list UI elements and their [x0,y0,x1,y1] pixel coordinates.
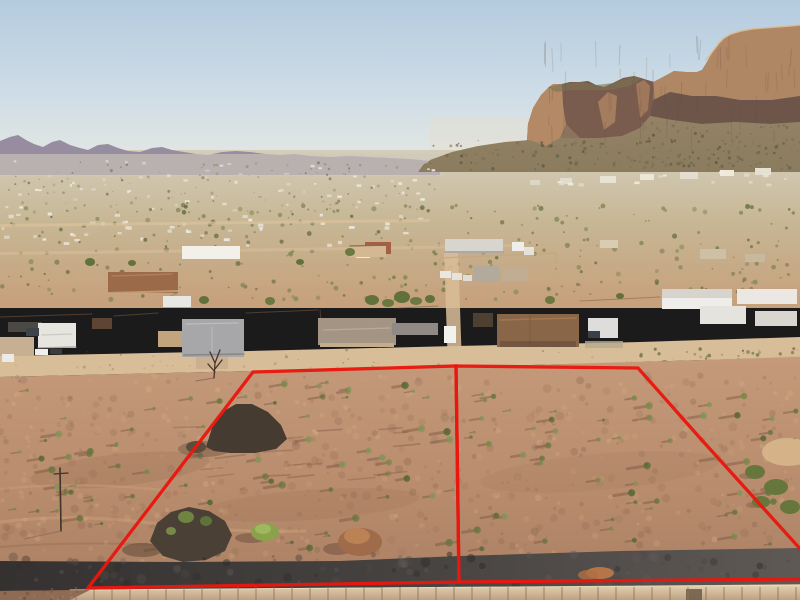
aerial-lot-photo [0,0,800,600]
desert-aerial-scene [0,0,800,600]
wall-posts [76,587,796,600]
